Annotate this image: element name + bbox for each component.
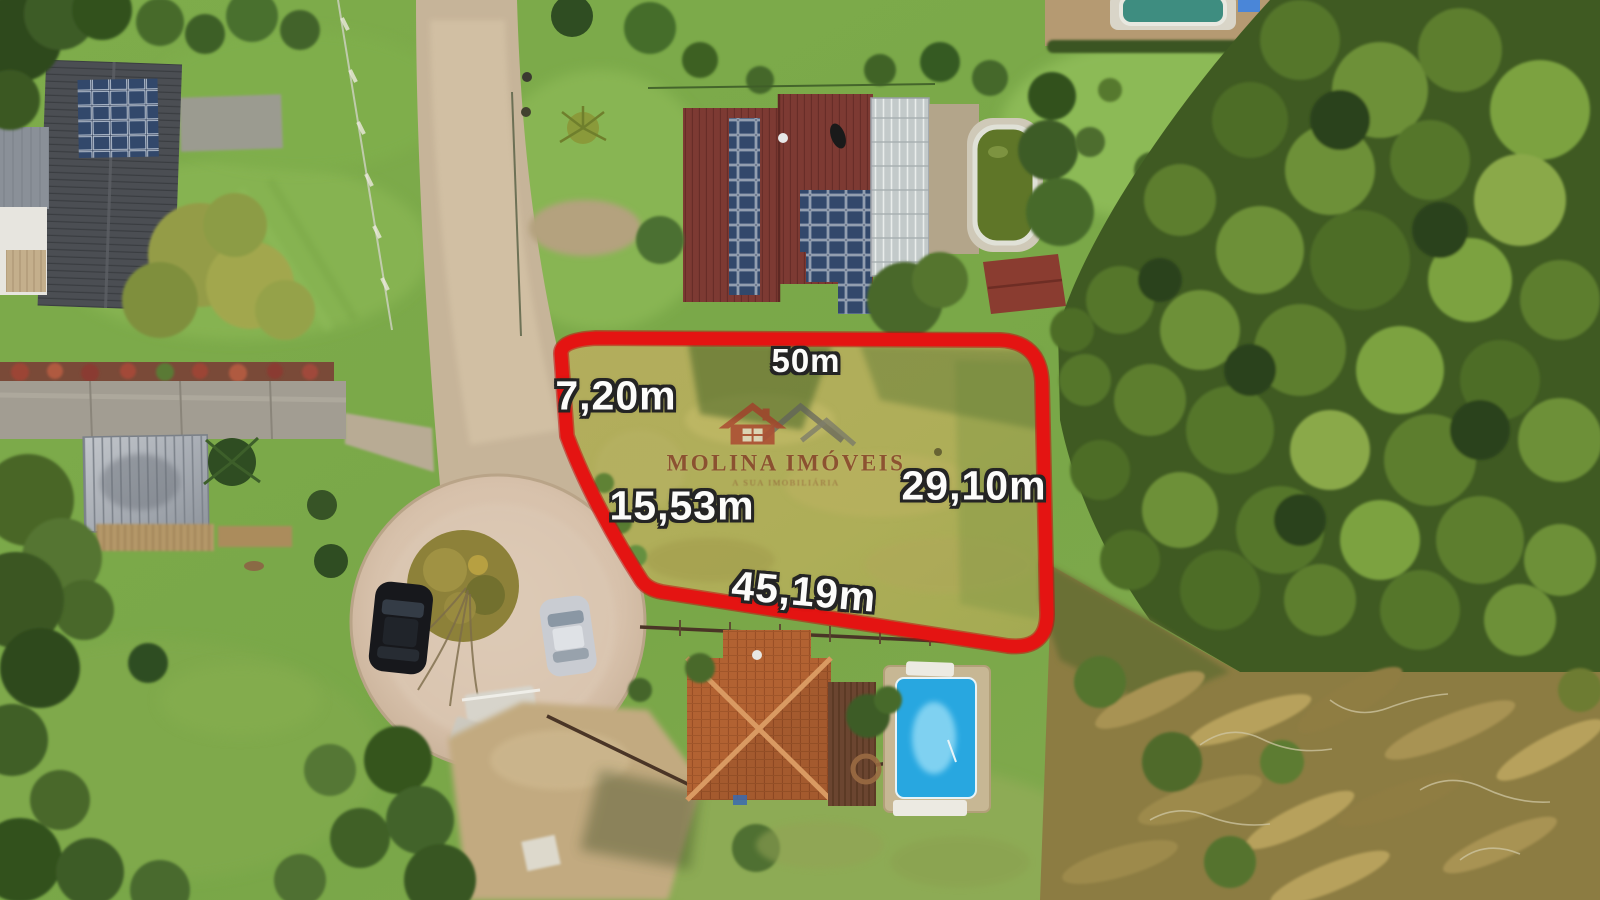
dimension-label-left-upper: 7,20m <box>555 373 676 420</box>
aerial-photo: 50m 7,20m 15,53m 29,10m 45,19m MOLINA IM… <box>0 0 1600 900</box>
black-car <box>367 580 434 676</box>
dimension-label-right: 29,10m <box>901 463 1046 510</box>
dimension-label-top: 50m <box>771 342 840 380</box>
solar-cluster <box>800 190 872 252</box>
greenhouse-roof <box>871 98 929 276</box>
blue-pool <box>884 661 990 816</box>
solar-column <box>729 118 760 295</box>
solar-array <box>75 76 162 161</box>
top-pool <box>1121 0 1225 24</box>
dimension-label-left-lower: 15,53m <box>609 483 754 530</box>
aerial-scene <box>0 0 1600 900</box>
metal-shed <box>83 435 209 532</box>
